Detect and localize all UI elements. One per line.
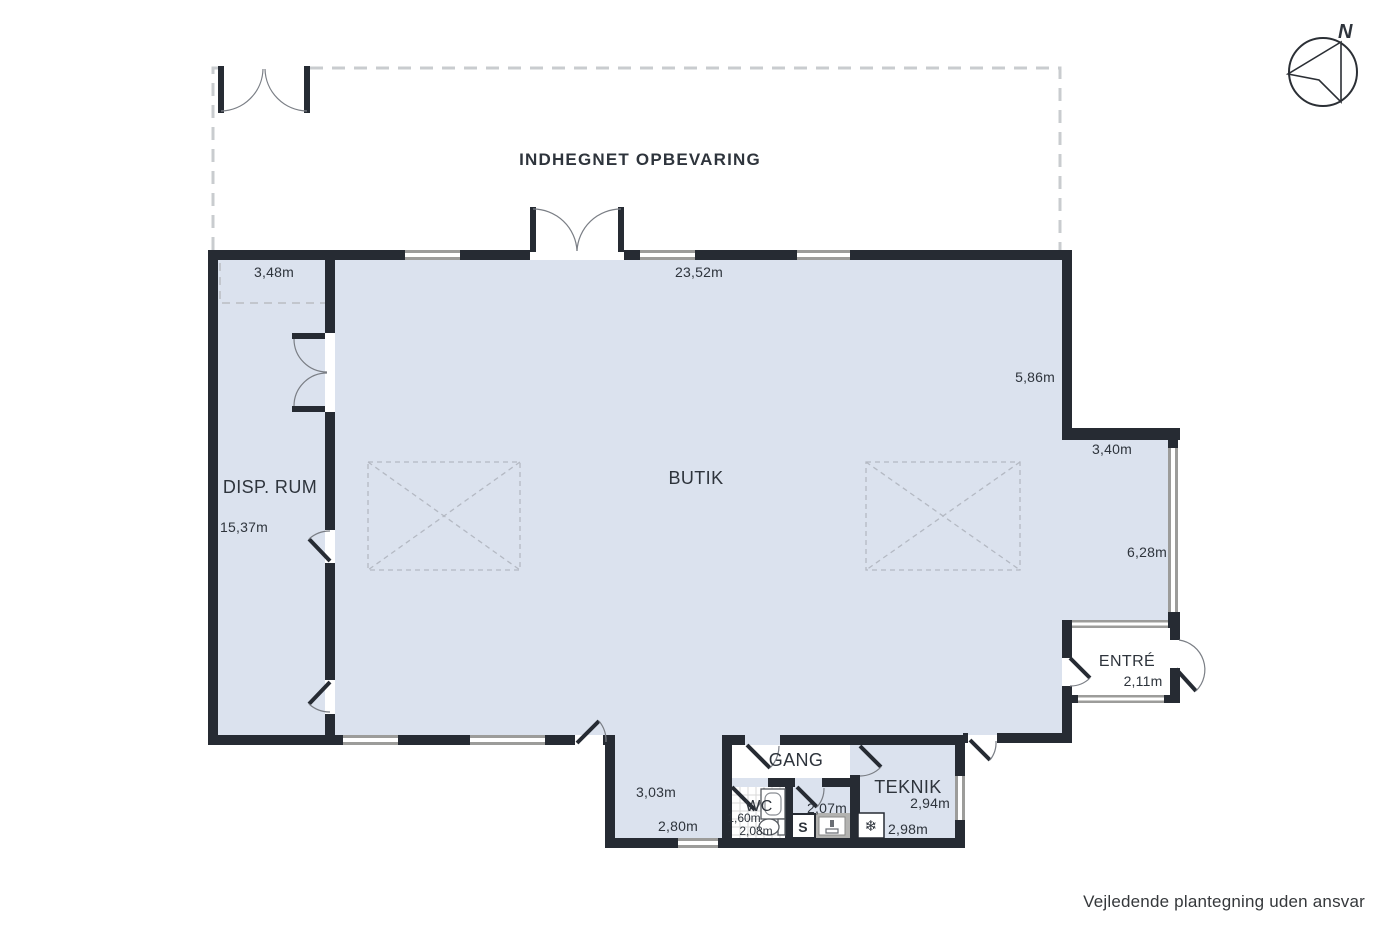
fence-gate-door	[218, 66, 310, 113]
double-door-butik-storage	[530, 207, 624, 252]
dim-butik-right: 5,86m	[1015, 369, 1055, 385]
dim-annex-width: 2,80m	[658, 818, 698, 834]
butik-label: BUTIK	[668, 468, 723, 488]
window-top-1	[405, 250, 460, 260]
dim-wc-width: 1,60m	[727, 811, 760, 825]
floor-plan-drawing: N INDHEGNET OPBEVARING BUTIK DISP. RUM E…	[0, 0, 1400, 933]
dim-disp-height: 15,37m	[220, 519, 268, 535]
dim-annex-height: 3,03m	[636, 784, 676, 800]
window-bottom-1	[343, 735, 398, 745]
gang-label: GANG	[769, 750, 824, 770]
snowflake-icon: ❄	[865, 818, 878, 835]
teknik-label: TEKNIK	[874, 777, 941, 797]
butik-floor-right	[1062, 440, 1168, 622]
window-top-2	[640, 250, 695, 260]
storage-area-label: INDHEGNET OPBEVARING	[519, 150, 761, 169]
floor-plan-page: N INDHEGNET OPBEVARING BUTIK DISP. RUM E…	[0, 0, 1400, 933]
cabinet-label: S	[798, 819, 808, 835]
floor-fills	[218, 260, 1170, 838]
dim-entre: 2,11m	[1124, 673, 1163, 689]
door-entre-exterior	[1176, 640, 1205, 691]
dim-wc-height: 2,08m	[739, 824, 772, 838]
dim-step: 3,40m	[1092, 441, 1132, 457]
window-entre-bottom	[1078, 695, 1164, 703]
dim-butik-top: 23,52m	[675, 264, 723, 280]
disp-rum-floor	[218, 260, 325, 735]
dim-utility: 2,07m	[807, 800, 847, 816]
dim-disp-storage: 3,48m	[254, 264, 294, 280]
dim-right-lower: 6,28m	[1127, 544, 1167, 560]
disp-rum-label: DISP. RUM	[223, 477, 317, 497]
dim-teknik-width: 2,94m	[910, 795, 950, 811]
compass-north-label: N	[1338, 21, 1353, 43]
window-bottom-2	[470, 735, 545, 745]
disclaimer-text: Vejledende plantegning uden ansvar	[1083, 892, 1365, 911]
entre-label: ENTRÉ	[1099, 651, 1155, 670]
butik-floor	[335, 260, 1062, 735]
window-entre-top	[1072, 620, 1168, 628]
dim-teknik-height: 2,98m	[888, 821, 928, 837]
window-right-tall	[1168, 448, 1178, 612]
window-top-3	[797, 250, 850, 260]
compass: N	[1288, 21, 1357, 106]
utility-counter	[815, 813, 850, 838]
window-annex-bottom	[678, 838, 718, 848]
door-exterior-south	[970, 740, 996, 760]
window-teknik	[955, 776, 965, 820]
